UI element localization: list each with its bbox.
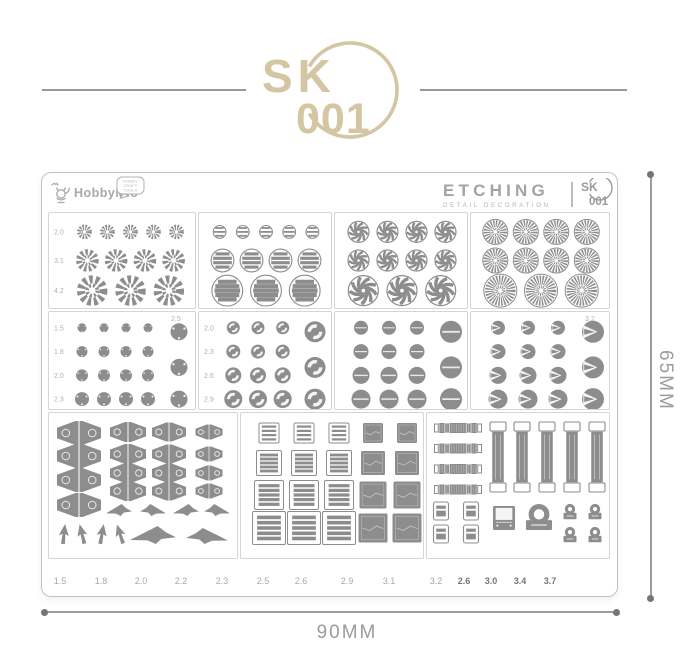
louver-disc-part	[251, 275, 282, 306]
strap-horizontal-part	[435, 444, 482, 454]
hinge-part	[110, 463, 146, 483]
slot-rivet-part	[440, 321, 462, 343]
louver-vent-part	[290, 481, 319, 510]
logo-num-text: 001	[296, 95, 371, 140]
fan-disc-part	[483, 219, 508, 244]
sk001-badge-icon: SK 001	[576, 178, 616, 209]
hinge-part	[110, 422, 146, 442]
turbine-part	[406, 221, 427, 242]
badge-num-text: 001	[589, 196, 609, 208]
size-label: 3.4	[514, 576, 527, 586]
hinge-part	[196, 447, 223, 462]
size-label: 2.6	[295, 576, 308, 586]
slot-rivets-art	[335, 312, 467, 409]
louver-vent-part	[294, 423, 314, 443]
size-label: 2.0	[135, 576, 148, 586]
strap-vertical-part	[539, 422, 555, 492]
panel-slot-rivets	[334, 311, 468, 410]
etching-title: ETCHING	[443, 181, 569, 201]
rivet-part	[78, 323, 87, 332]
fan-disc-part	[574, 219, 599, 244]
louver-disc-part	[212, 275, 243, 306]
slot-rivet-part	[440, 356, 462, 378]
gear-rings-art: 2.03.14.2	[49, 213, 195, 308]
cone-port-part	[491, 344, 506, 359]
louver-disc-part	[213, 226, 226, 239]
strap-vertical-part	[589, 422, 605, 492]
gear-part	[79, 252, 96, 269]
dimension-dot	[647, 171, 654, 178]
hinge-part	[57, 421, 101, 445]
size-row-label: 2.0	[54, 229, 64, 236]
width-dimension-line	[42, 611, 618, 613]
dart-part	[95, 523, 108, 544]
jet-part	[204, 504, 230, 516]
rivet-dots-art: 1.51.82.02.32.5	[49, 312, 195, 409]
louver-vent-part	[323, 512, 356, 545]
fan-discs-art	[471, 213, 609, 308]
louver-disc-part	[260, 226, 273, 239]
turbine-part	[435, 221, 456, 242]
panel-turbine-wheels	[334, 212, 468, 309]
size-row-label: 2.0	[54, 373, 64, 380]
clasp-part	[589, 528, 602, 542]
strap-horizontal-part	[435, 485, 482, 495]
rivet-part	[171, 359, 188, 376]
buckle-part	[434, 502, 449, 520]
slot-rivet-part	[382, 344, 397, 359]
ring-rivet-part	[305, 321, 326, 342]
gear-part	[158, 279, 180, 301]
size-label: 2.2	[175, 576, 188, 586]
size-label: 1.5	[54, 576, 67, 586]
rivet-part	[121, 346, 132, 357]
panel-vent-part	[395, 451, 419, 475]
panel-vent-part	[361, 451, 385, 475]
ring-rivet-part	[276, 345, 290, 359]
cone-ports-art: 3.2	[471, 312, 609, 409]
ring-rivet-part	[275, 367, 291, 383]
slot-rivet-part	[354, 321, 368, 335]
fan-disc-part	[525, 274, 558, 307]
jet-part	[106, 504, 132, 516]
size-row-label: 4.2	[54, 288, 64, 295]
ring-rivet-part	[252, 321, 265, 334]
rivet-part	[75, 392, 89, 406]
rivet-part	[142, 369, 154, 381]
sk001-logo: SK 001	[250, 35, 410, 140]
size-row-label: 2.3	[204, 349, 214, 356]
clasp-part	[589, 505, 602, 519]
latch-plate-part	[493, 506, 515, 530]
cone-port-part	[549, 390, 568, 409]
louver-disc-part	[211, 249, 234, 272]
slot-rivet-part	[381, 367, 398, 384]
rivet-part	[171, 323, 188, 340]
dimension-dot	[613, 609, 620, 616]
panel-vent-part	[397, 423, 417, 443]
hinge-part	[152, 445, 186, 464]
speech-bubble-icon: HOBBY CRAFT TOOLS	[116, 176, 146, 201]
panel-straps-and-buckles	[426, 412, 610, 559]
gear-part	[171, 227, 182, 238]
hinge-part	[57, 444, 101, 468]
turbine-part	[377, 221, 398, 242]
jet-part	[186, 528, 228, 544]
hinge-part	[57, 468, 101, 492]
gear-part	[137, 252, 154, 269]
louver-discs-art	[199, 213, 331, 308]
cone-port-part	[521, 321, 535, 335]
size-row-label: 2.3	[54, 397, 64, 404]
vent-grilles-art	[241, 413, 423, 558]
panel-louver-discs	[198, 212, 332, 309]
ring-rivet-part	[249, 390, 267, 408]
slot-rivet-part	[408, 390, 427, 409]
louver-vent-part	[255, 481, 284, 510]
louver-vent-part	[327, 451, 352, 476]
gear-part	[125, 227, 136, 238]
cone-port-part	[519, 390, 538, 409]
cone-port-part	[491, 321, 505, 335]
size-row-label: 3.1	[54, 258, 64, 265]
turbine-part	[435, 250, 456, 271]
buckle-part	[434, 525, 449, 543]
lock-part	[526, 507, 552, 530]
fan-disc-part	[484, 274, 517, 307]
size-row-label: 2.6	[204, 373, 214, 380]
hinge-part	[152, 464, 186, 483]
ring-rivet-part	[226, 345, 240, 359]
gear-part	[148, 227, 159, 238]
louver-disc-part	[289, 275, 320, 306]
hinge-part	[110, 444, 146, 464]
strap-horizontal-part	[435, 423, 482, 433]
badge-sk-text: SK	[581, 180, 598, 194]
size-row-label: 1.5	[54, 325, 64, 332]
turbine-part	[348, 276, 378, 306]
straps-and-buckles-art	[427, 413, 609, 558]
jet-part	[140, 504, 166, 516]
cone-port-part	[550, 367, 567, 384]
panel-vent-part	[363, 423, 383, 443]
hinge-part	[196, 466, 223, 481]
panel-rivet-dots: 1.51.82.02.32.5	[48, 311, 196, 410]
slot-rivet-part	[380, 390, 399, 409]
buckle-part	[464, 525, 479, 543]
dart-part	[112, 523, 128, 545]
dart-part	[75, 523, 90, 545]
louver-vent-part	[257, 451, 282, 476]
louver-vent-part	[329, 423, 349, 443]
slot-rivet-part	[410, 321, 424, 335]
cone-port-part	[489, 390, 508, 409]
gear-part	[108, 252, 125, 269]
ring-rivet-part	[276, 321, 289, 334]
cone-port-part	[551, 321, 565, 335]
size-row-label: 1.8	[54, 349, 64, 356]
panel-ring-rivets: 2.02.32.62.9	[198, 311, 332, 410]
rivet-part	[97, 392, 111, 406]
rivet-part	[98, 369, 110, 381]
hinge-part	[196, 425, 223, 440]
louver-disc-part	[240, 249, 263, 272]
gear-part	[119, 279, 141, 301]
gear-part	[165, 252, 182, 269]
hinge-part	[110, 481, 146, 501]
fan-disc-part	[565, 274, 598, 307]
height-dimension-label: 65MM	[654, 350, 676, 411]
clasp-part	[564, 528, 577, 542]
cone-port-part	[520, 367, 537, 384]
louver-disc-part	[306, 226, 319, 239]
rivet-part	[77, 346, 88, 357]
size-label: 3.7	[544, 576, 557, 586]
rivet-part	[76, 369, 88, 381]
rivet-part	[143, 346, 154, 357]
hobbymio-mascot-icon	[49, 181, 73, 207]
jet-part	[130, 526, 176, 544]
louver-vent-part	[288, 512, 321, 545]
rivet-part	[120, 369, 132, 381]
louver-disc-part	[269, 249, 292, 272]
slot-rivet-part	[409, 367, 426, 384]
ring-rivet-part	[224, 390, 242, 408]
dimension-dot	[647, 595, 654, 602]
panel-vent-grilles	[240, 412, 424, 559]
etching-subtitle: DETAIL DECORATION	[443, 202, 569, 209]
rivet-part	[171, 391, 188, 408]
turbine-part	[348, 250, 369, 271]
louver-vent-part	[292, 451, 317, 476]
fan-disc-part	[513, 219, 538, 244]
hinge-part	[152, 482, 186, 501]
slot-rivet-part	[352, 390, 371, 409]
turbine-part	[377, 250, 398, 271]
strap-vertical-part	[514, 422, 530, 492]
ring-rivet-part	[225, 367, 241, 383]
panel-fan-discs	[470, 212, 610, 309]
gear-part	[102, 227, 113, 238]
turbine-part	[348, 221, 369, 242]
slot-rivet-part	[382, 321, 396, 335]
cone-port-part	[521, 344, 536, 359]
height-dimension-line	[650, 174, 652, 598]
decorative-line-left	[42, 89, 246, 91]
size-label: 2.5	[257, 576, 270, 586]
turbine-part	[406, 250, 427, 271]
slot-rivet-part	[410, 344, 425, 359]
louver-disc-part	[283, 226, 296, 239]
louver-disc-part	[298, 249, 321, 272]
header-divider	[571, 182, 573, 207]
strap-vertical-part	[490, 422, 506, 492]
hinges-and-jets-art	[49, 413, 237, 558]
bubble-line-2: CRAFT	[124, 184, 138, 188]
ring-rivet-part	[305, 357, 326, 378]
louver-vent-part	[259, 423, 279, 443]
ring-rivet-part	[250, 367, 266, 383]
strap-horizontal-part	[435, 464, 482, 474]
cone-port-part	[582, 356, 604, 378]
rivet-part	[144, 323, 153, 332]
dimension-dot	[41, 609, 48, 616]
size-label: 2.9	[341, 576, 354, 586]
panel-hinges-and-jets	[48, 412, 238, 559]
bubble-line-3: TOOLS	[123, 188, 137, 192]
fan-disc-part	[574, 248, 599, 273]
hinge-part	[152, 423, 186, 442]
decorative-line-right	[420, 89, 627, 91]
slot-rivet-part	[354, 344, 369, 359]
size-row-label: 2.5	[171, 316, 181, 323]
size-label: 1.8	[95, 576, 108, 586]
rivet-part	[119, 392, 133, 406]
hinge-part	[57, 493, 101, 517]
turbine-part	[426, 276, 456, 306]
jet-part	[173, 504, 199, 516]
panel-vent-part	[360, 482, 387, 509]
panel-gear-rings: 2.03.14.2	[48, 212, 196, 309]
dart-part	[58, 524, 70, 545]
fan-disc-part	[513, 248, 538, 273]
turbine-wheels-art	[335, 213, 467, 308]
rivet-part	[99, 346, 110, 357]
gear-part	[81, 279, 103, 301]
size-row-label: 2.9	[204, 397, 214, 404]
rivet-part	[141, 392, 155, 406]
width-dimension-label: 90MM	[0, 622, 694, 644]
fan-disc-part	[544, 248, 569, 273]
slot-rivet-part	[440, 388, 462, 409]
louver-disc-part	[236, 226, 249, 239]
hinge-part	[196, 484, 223, 499]
louver-vent-part	[253, 512, 286, 545]
clasp-part	[564, 505, 577, 519]
panel-cone-ports: 3.2	[470, 311, 610, 410]
size-label: 3.0	[485, 576, 498, 586]
size-label: 2.3	[216, 576, 229, 586]
slot-rivet-part	[353, 367, 370, 384]
ring-rivet-part	[274, 390, 292, 408]
cone-port-part	[551, 344, 566, 359]
fan-disc-part	[544, 219, 569, 244]
cone-port-part	[490, 367, 507, 384]
ring-rivets-art: 2.02.32.62.9	[199, 312, 331, 409]
buckle-part	[464, 502, 479, 520]
turbine-part	[387, 276, 417, 306]
size-label: 3.2	[430, 576, 443, 586]
product-image: SK 001 HobbyMio HOBBY CRAFT TOOLS ETCHIN…	[0, 0, 694, 671]
size-label: 2.6	[458, 576, 471, 586]
cone-port-part	[582, 321, 604, 343]
size-row-label: 2.0	[204, 325, 214, 332]
louver-vent-part	[325, 481, 354, 510]
ring-rivet-part	[227, 321, 240, 334]
fan-disc-part	[483, 248, 508, 273]
gear-part	[79, 227, 90, 238]
ring-rivet-part	[251, 345, 265, 359]
etching-header: ETCHING DETAIL DECORATION	[443, 181, 569, 209]
ring-rivet-part	[305, 389, 326, 409]
rivet-part	[100, 323, 109, 332]
bubble-line-1: HOBBY	[123, 180, 138, 184]
panel-vent-part	[393, 514, 422, 543]
strap-vertical-part	[564, 422, 580, 492]
size-label: 3.1	[383, 576, 396, 586]
panel-vent-part	[359, 514, 388, 543]
panel-vent-part	[394, 482, 421, 509]
rivet-part	[122, 323, 131, 332]
cone-port-part	[582, 388, 604, 409]
